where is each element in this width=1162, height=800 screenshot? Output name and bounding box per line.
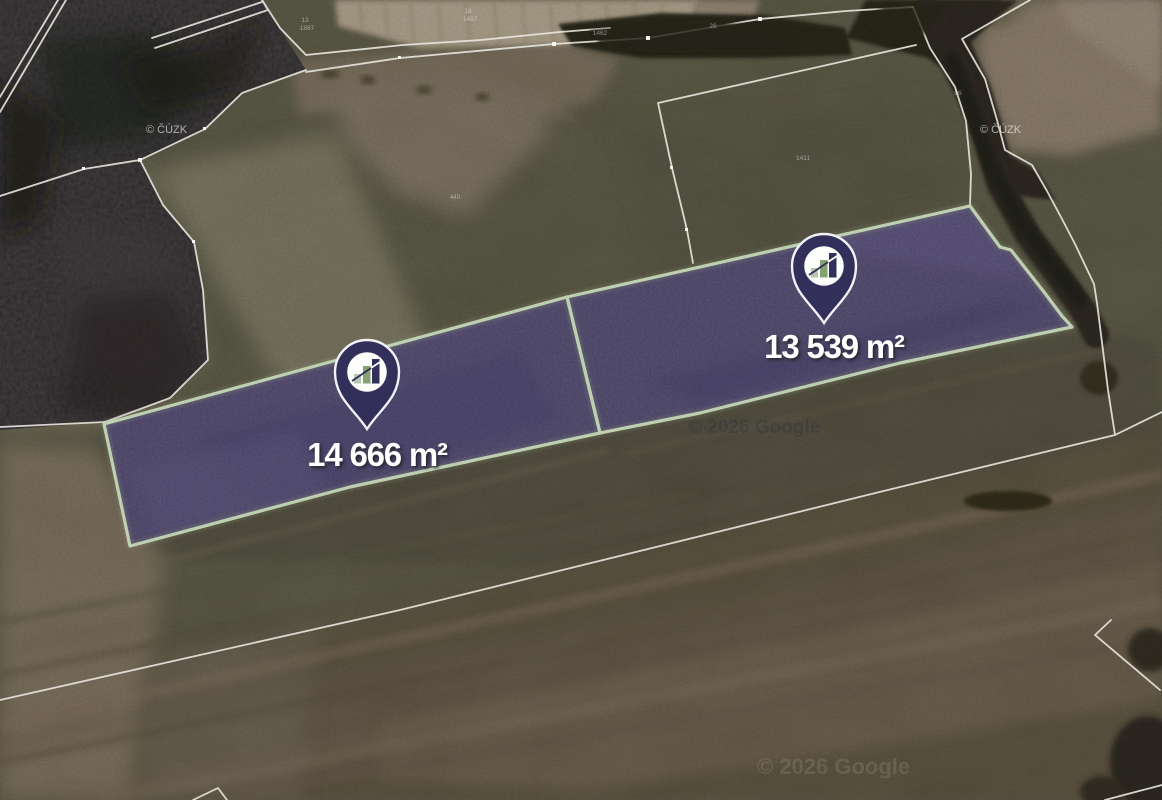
svg-text:© 2026 Google: © 2026 Google [757,754,910,779]
svg-text:13 539 m²: 13 539 m² [764,328,905,365]
svg-text:© ČÚZK: © ČÚZK [980,123,1022,136]
svg-text:© ČÚZK: © ČÚZK [146,123,188,136]
svg-text:© 2026 Google: © 2026 Google [688,417,820,438]
svg-text:14 666 m²: 14 666 m² [307,436,448,473]
